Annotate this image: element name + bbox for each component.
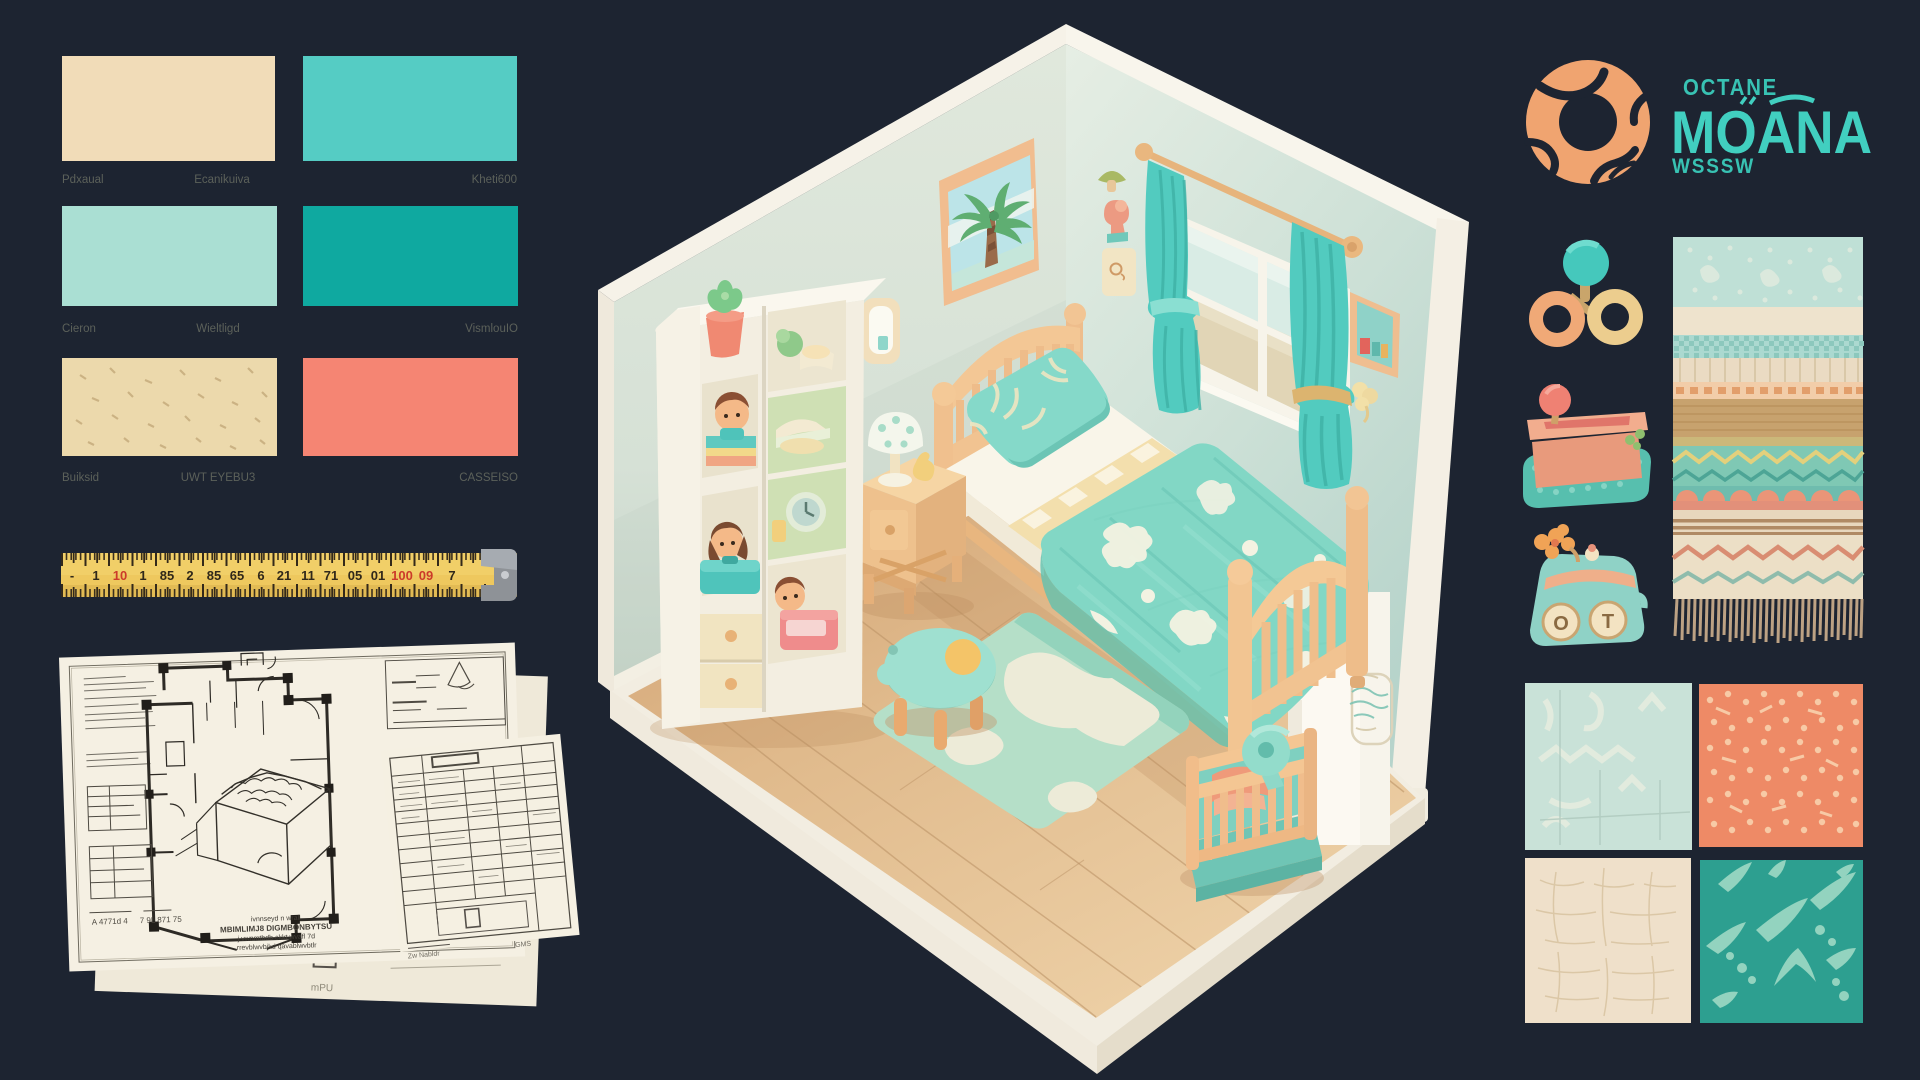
svg-text:1: 1 — [92, 568, 99, 583]
svg-text:10: 10 — [113, 568, 127, 583]
svg-text:Ecanikuiva: Ecanikuiva — [194, 174, 250, 186]
svg-text:65: 65 — [230, 568, 244, 583]
svg-text:7: 7 — [448, 568, 455, 583]
svg-text:1: 1 — [139, 568, 146, 583]
svg-text:T: T — [1602, 611, 1614, 633]
svg-text:Kheti600: Kheti600 — [472, 174, 517, 186]
svg-text:Pdxaual: Pdxaual — [62, 174, 104, 186]
svg-text:7 9L 871 75: 7 9L 871 75 — [140, 915, 183, 925]
svg-text:Buiksid: Buiksid — [62, 472, 99, 484]
svg-text:Wieltligd: Wieltligd — [196, 323, 239, 335]
svg-text:05: 05 — [348, 568, 362, 583]
svg-text:85: 85 — [160, 568, 174, 583]
svg-text:CASSEISO: CASSEISO — [459, 472, 518, 484]
svg-text:85: 85 — [207, 568, 221, 583]
svg-text:UWT EYEBU3: UWT EYEBU3 — [181, 472, 256, 484]
svg-text:01: 01 — [371, 568, 385, 583]
svg-text:11: 11 — [301, 568, 315, 583]
svg-text:71: 71 — [324, 568, 338, 583]
svg-text:Cieron: Cieron — [62, 323, 96, 335]
svg-text:21: 21 — [277, 568, 291, 583]
svg-text:100: 100 — [391, 568, 413, 583]
svg-text:O: O — [1553, 613, 1569, 635]
svg-text:6: 6 — [257, 568, 264, 583]
svg-text:WSSSW: WSSSW — [1672, 155, 1755, 178]
svg-text:2: 2 — [186, 568, 193, 583]
svg-text:VismlouIO: VismlouIO — [465, 323, 518, 335]
svg-text:OCTANE: OCTANE — [1683, 74, 1778, 100]
svg-text:09: 09 — [419, 568, 433, 583]
svg-text:-: - — [70, 568, 74, 583]
svg-text:mPU: mPU — [311, 982, 334, 994]
svg-text:A 4771d 4: A 4771d 4 — [92, 916, 129, 926]
